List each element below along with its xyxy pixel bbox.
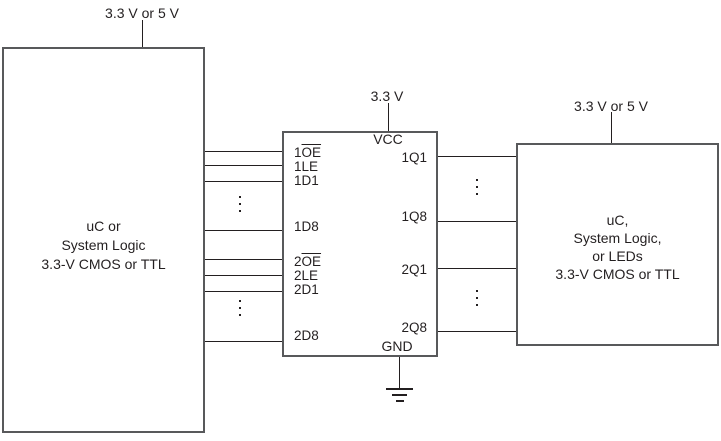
pin-label-1q1: 1Q1 — [357, 150, 427, 166]
pin-label-1q8: 1Q8 — [357, 209, 427, 225]
left-box-line1: uC or — [4, 217, 203, 236]
circuit-diagram: 3.3 V or 5 V 3.3 V 3.3 V or 5 V uC or Sy… — [0, 0, 721, 441]
supply-label-middle: 3.3 V — [356, 88, 418, 104]
wire-1le — [205, 165, 282, 166]
right-box-text: uC, System Logic, or LEDs 3.3-V CMOS or … — [518, 211, 717, 283]
wire-2d8 — [205, 341, 282, 342]
supply-wire-left — [142, 20, 143, 47]
pin-label-2q1: 2Q1 — [357, 262, 427, 278]
left-box-line3: 3.3-V CMOS or TTL — [4, 255, 203, 274]
supply-label-left: 3.3 V or 5 V — [82, 5, 202, 21]
wire-1q1 — [438, 156, 516, 157]
wire-1d1 — [205, 181, 282, 182]
left-box-text: uC or System Logic 3.3-V CMOS or TTL — [4, 217, 203, 274]
wire-1d8 — [205, 230, 282, 231]
ellipsis-dots-inputs-1 — [239, 196, 241, 217]
left-system-logic-box: uC or System Logic 3.3-V CMOS or TTL — [2, 47, 205, 433]
vcc-pin-label: VCC — [358, 131, 418, 147]
wire-2q8 — [438, 331, 516, 332]
pin-label-1d1: 1D1 — [294, 173, 319, 189]
supply-wire-right — [611, 112, 612, 143]
wire-1q8 — [438, 221, 516, 222]
pin-label-2d1: 2D1 — [294, 282, 319, 298]
ground-symbol-bar1 — [386, 388, 413, 390]
right-system-logic-box: uC, System Logic, or LEDs 3.3-V CMOS or … — [516, 143, 719, 346]
right-box-line3: or LEDs — [518, 247, 717, 265]
pin-label-1d8: 1D8 — [294, 219, 319, 235]
right-box-line4: 3.3-V CMOS or TTL — [518, 265, 717, 283]
ground-symbol-bar3 — [396, 400, 404, 402]
gnd-pin-label: GND — [367, 338, 427, 354]
wire-2d1 — [205, 291, 282, 292]
right-box-line1: uC, — [518, 211, 717, 229]
wire-2le — [205, 275, 282, 276]
pin-label-2q8: 2Q8 — [357, 320, 427, 336]
pin-label-2d8: 2D8 — [294, 328, 319, 344]
wire-2oe — [205, 259, 282, 260]
ground-wire — [399, 357, 400, 388]
ellipsis-dots-inputs-2 — [239, 300, 241, 321]
wire-1oe — [205, 151, 282, 152]
right-box-line2: System Logic, — [518, 229, 717, 247]
supply-wire-middle — [388, 103, 389, 131]
wire-2q1 — [438, 268, 516, 269]
ground-symbol-bar2 — [392, 394, 407, 396]
ellipsis-dots-outputs-2 — [476, 290, 478, 311]
left-box-line2: System Logic — [4, 236, 203, 255]
ellipsis-dots-outputs-1 — [476, 179, 478, 200]
